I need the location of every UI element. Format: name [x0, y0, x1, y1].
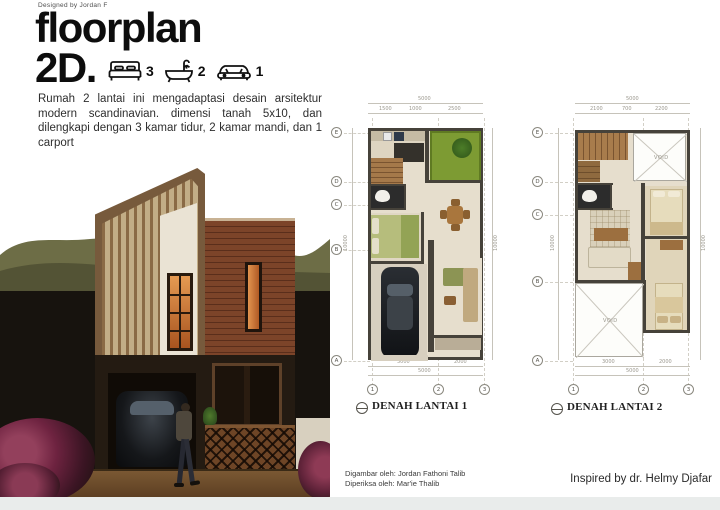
garden-tree [452, 138, 472, 158]
front-door [212, 363, 282, 427]
dim-label: 2000 [659, 359, 672, 365]
grid-bubble-row: D [532, 176, 543, 187]
grid-bubble-row: A [331, 355, 342, 366]
dim-label: 3000 [602, 359, 615, 365]
dim-label: 10000 [493, 235, 499, 251]
dim-label: 5000 [626, 368, 639, 374]
terrace [435, 338, 481, 350]
stat-bedrooms-count: 3 [146, 63, 154, 79]
bottom-strip [0, 497, 720, 510]
void-top: VOID [633, 133, 686, 181]
family-sofa [588, 247, 631, 268]
dim-label: 5000 [418, 368, 431, 374]
bed3-desk [660, 240, 683, 250]
entry-plant [203, 407, 217, 425]
bath-icon [164, 59, 194, 83]
lit-window-narrow [245, 262, 262, 332]
dim-label: 10000 [701, 235, 707, 251]
stat-bathrooms-count: 2 [198, 63, 206, 79]
grid-bubble-col: 1 [367, 384, 378, 395]
house-render [0, 163, 330, 497]
car-icon [216, 60, 252, 82]
dining-chair [451, 224, 460, 231]
kitchen-fridge [383, 132, 392, 141]
title-line1: floorplan [35, 8, 201, 48]
inspired-by-text: Inspired by dr. Helmy Djafar [570, 473, 712, 485]
bed2-pillow [653, 191, 665, 197]
grid-bubble-row: B [331, 244, 342, 255]
pedestrian-body [176, 411, 192, 441]
bed-icon [108, 60, 142, 82]
dim-label: 10000 [343, 235, 349, 251]
bed3-pillow [657, 316, 668, 323]
bed3-blanket [655, 297, 683, 313]
plan-car-windshield [387, 284, 413, 296]
dining-chair [440, 210, 447, 219]
family-cabinet [628, 262, 641, 282]
kitchen-stove [394, 132, 404, 141]
stat-bedrooms: 3 [108, 60, 154, 82]
void-label: VOID [654, 155, 669, 161]
plan1-title: DENAH LANTAI 1 [372, 400, 468, 412]
dim-label: 700 [622, 106, 632, 112]
dim-label: 2100 [590, 106, 603, 112]
drawing-title-symbol [551, 403, 563, 415]
plan2-shelf [578, 161, 600, 182]
grid-bubble-row: E [532, 127, 543, 138]
stat-carport: 1 [216, 60, 264, 82]
plan-car-roof [387, 296, 413, 330]
grid-bubble-col: 2 [433, 384, 444, 395]
bed-pillow [372, 218, 379, 234]
credits-block: Digambar oleh: Jordan Fathoni Talib Dipe… [345, 469, 465, 489]
poster-sheet: Designed by Jordan F floorplan 2D. 3 [0, 0, 720, 510]
dim-label: 5000 [626, 96, 639, 102]
grid-bubble-row: C [532, 209, 543, 220]
car-windshield [130, 401, 174, 415]
dim-label: 1000 [409, 106, 422, 112]
dim-label: 5000 [418, 96, 431, 102]
void-label: VOID [603, 318, 618, 324]
family-dresser [594, 228, 628, 241]
grid-bubble-row: C [331, 199, 342, 210]
grid-bubble-col: 3 [683, 384, 694, 395]
bed-blanket [401, 215, 419, 258]
stats-row: 3 2 1 [108, 59, 263, 83]
toilet-fixture [582, 190, 597, 202]
plan1-stairs [371, 158, 403, 184]
bed2-blanket [650, 222, 683, 235]
dining-chair [463, 210, 470, 219]
plan2-stairs [578, 133, 628, 160]
drawn-by-text: Digambar oleh: Jordan Fathoni Talib [345, 469, 465, 479]
sofa-frame [463, 268, 478, 322]
lit-window-tall [167, 273, 193, 351]
bed3-pillow [670, 316, 681, 323]
grid-bubble-row: A [532, 355, 543, 366]
dim-label: 2500 [448, 106, 461, 112]
grid-bubble-col: 1 [568, 384, 579, 395]
grid-bubble-row: B [532, 276, 543, 287]
stat-carport-count: 1 [256, 63, 264, 79]
description-paragraph: Rumah 2 lantai ini mengadaptasi desain a… [38, 92, 322, 150]
void-bottom: VOID [575, 283, 643, 357]
bed-pillow [372, 238, 379, 254]
dining-chair [451, 199, 460, 206]
dining-table [447, 206, 463, 224]
grid-bubble-row: E [331, 127, 342, 138]
grid-bubble-row: D [331, 176, 342, 187]
coffee-table [444, 296, 456, 305]
plan2-title: DENAH LANTAI 2 [567, 401, 663, 413]
pedestrian-shoe [174, 483, 184, 487]
toilet-fixture [375, 190, 390, 202]
dim-label: 2200 [655, 106, 668, 112]
dim-label: 10000 [550, 235, 556, 251]
drawing-title-symbol [356, 402, 368, 414]
sofa-green [443, 268, 465, 286]
grid-bubble-col: 3 [479, 384, 490, 395]
plan1-garden [430, 131, 481, 182]
grid-bubble-col: 2 [638, 384, 649, 395]
checked-by-text: Diperiksa oleh: Mar'ie Thalib [345, 479, 465, 489]
stat-bathrooms: 2 [164, 59, 206, 83]
dim-label: 1500 [379, 106, 392, 112]
bed2-pillow [668, 191, 680, 197]
